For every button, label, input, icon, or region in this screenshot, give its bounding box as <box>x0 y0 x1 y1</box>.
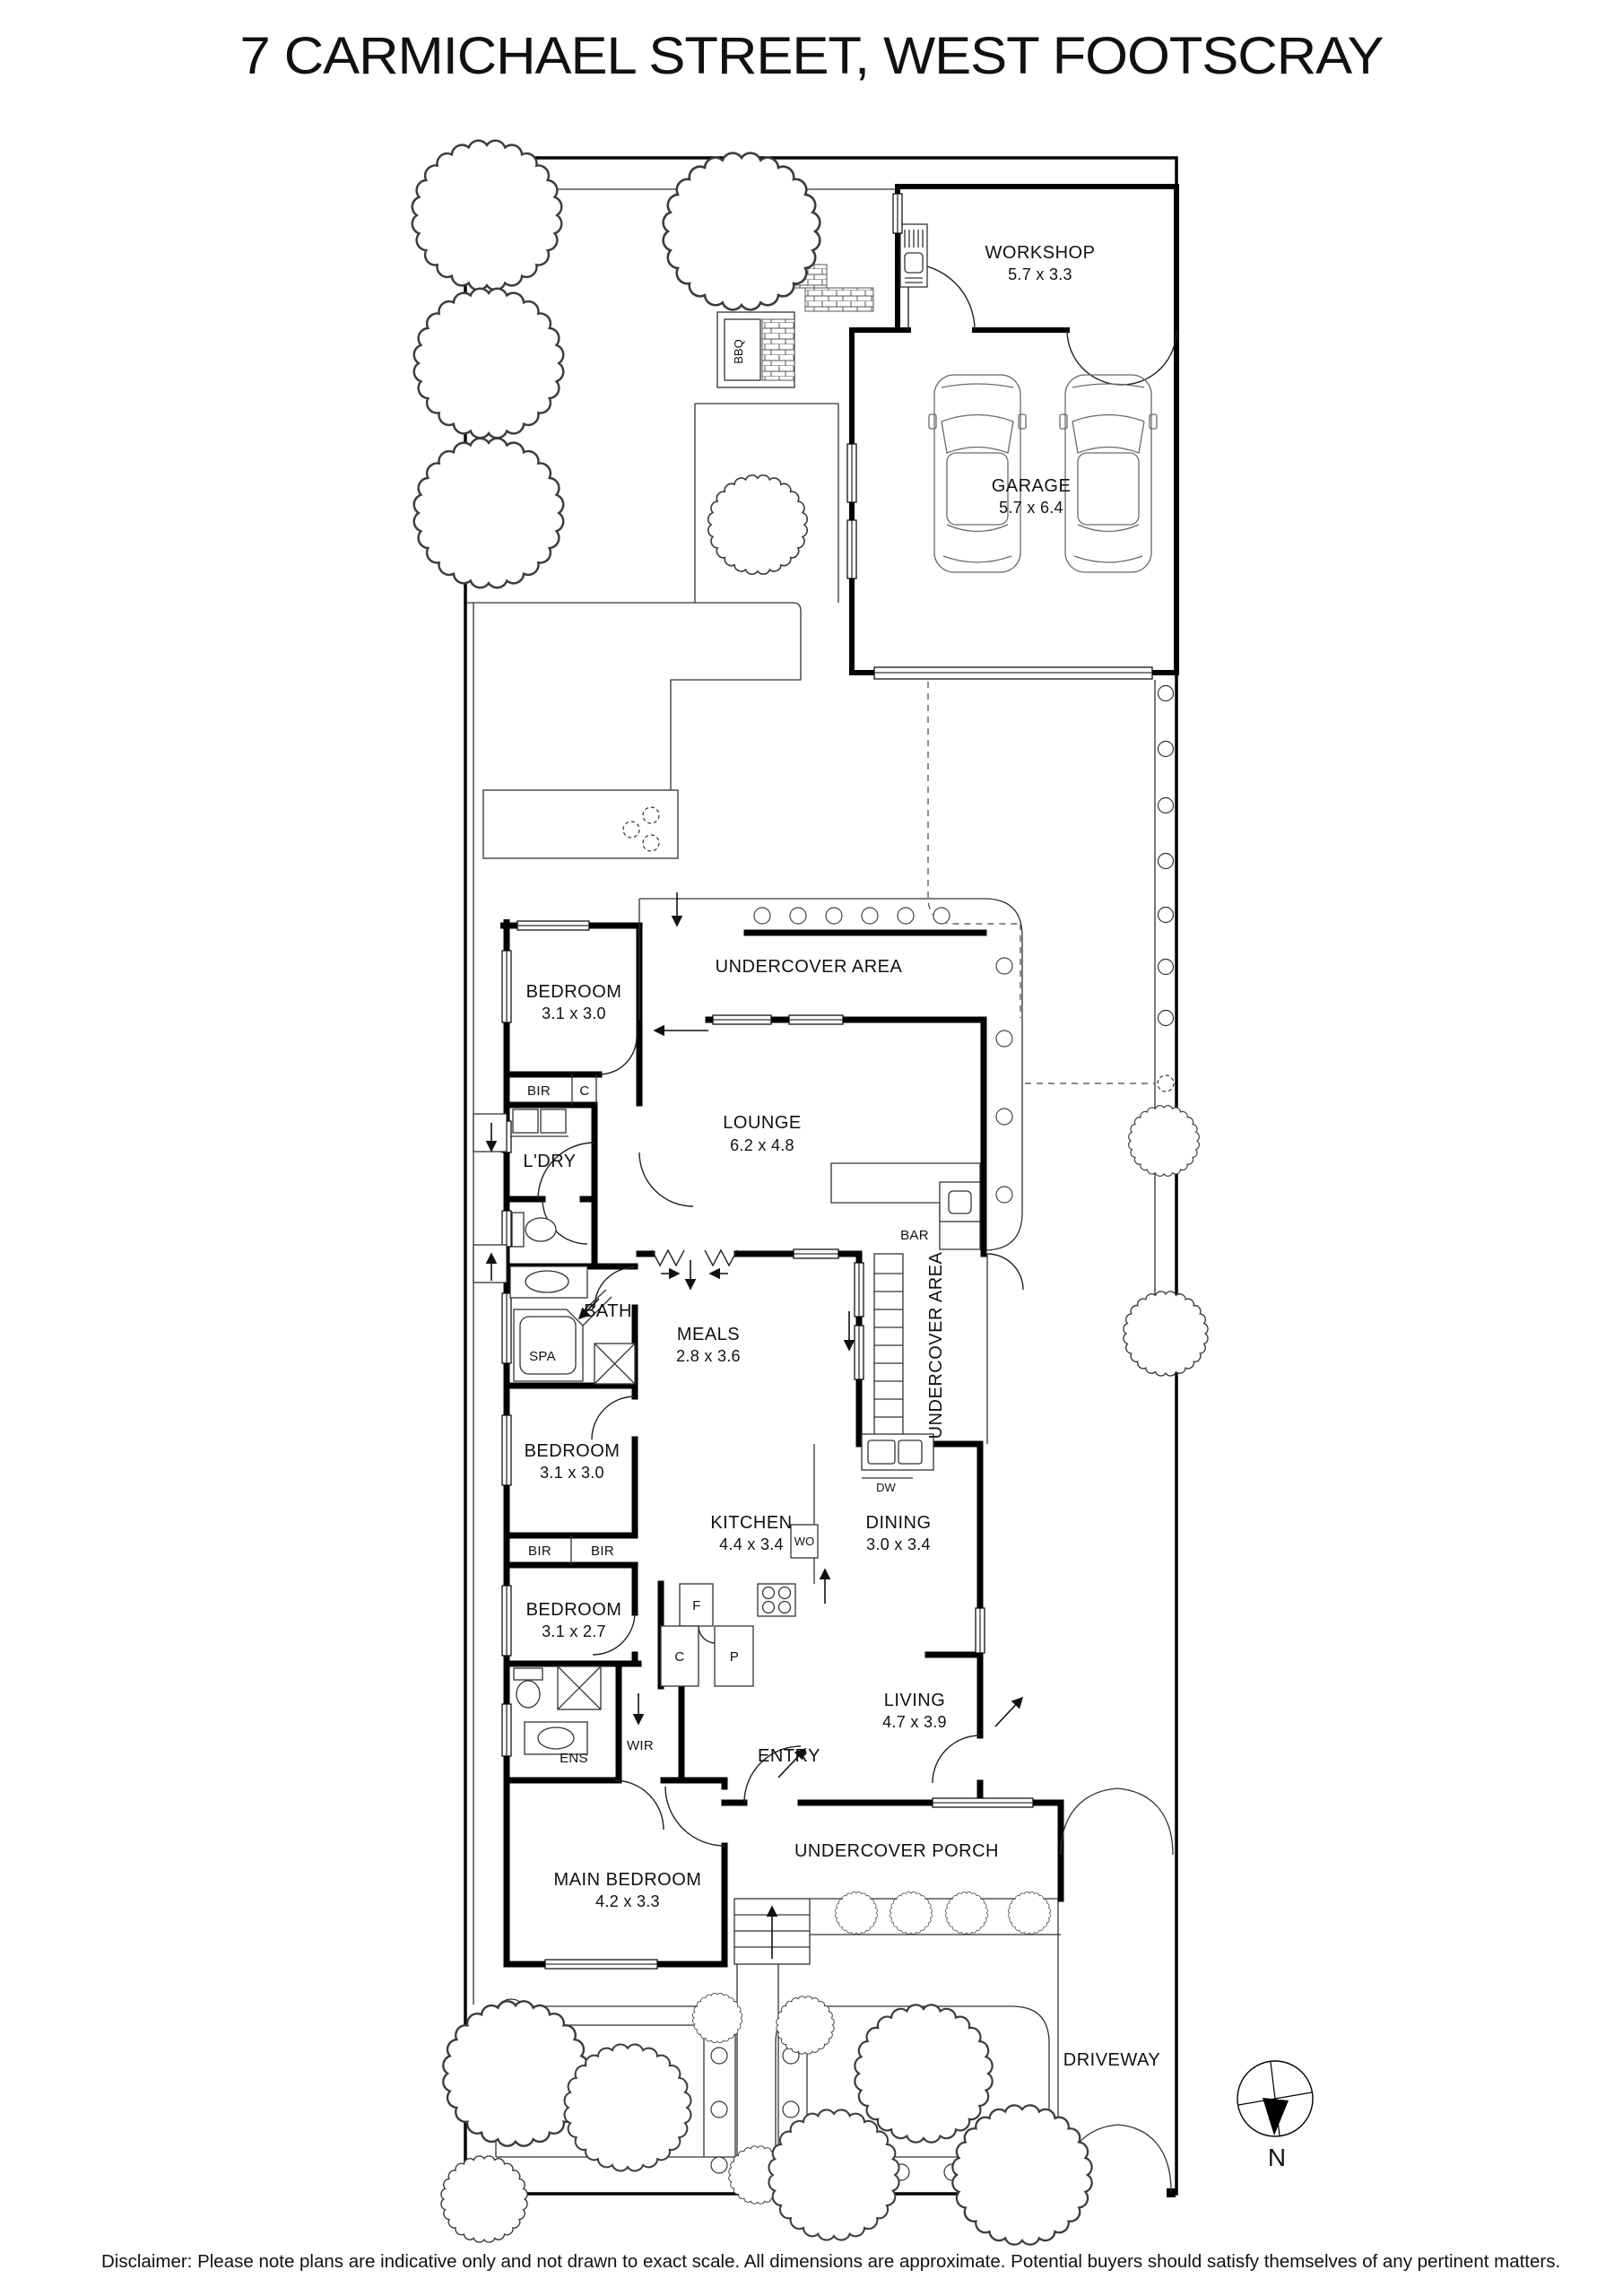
dims-bedroom-mid: 3.1 x 3.0 <box>540 1464 604 1482</box>
label-bir-1: BIR <box>527 1083 551 1099</box>
label-f: F <box>692 1598 700 1613</box>
label-laundry: L'DRY <box>523 1152 576 1171</box>
label-lounge: LOUNGE <box>723 1113 801 1133</box>
dims-garage: 5.7 x 6.4 <box>999 499 1063 517</box>
fixtures <box>510 1109 980 1754</box>
dims-meals: 2.8 x 3.6 <box>676 1347 741 1365</box>
dims-workshop: 5.7 x 3.3 <box>1008 265 1072 283</box>
label-bar: BAR <box>900 1228 929 1243</box>
label-driveway: DRIVEWAY <box>1063 2050 1160 2070</box>
label-dw: DW <box>876 1481 896 1494</box>
label-garage: GARAGE <box>992 476 1072 496</box>
label-bbq: BBQ <box>732 339 745 363</box>
page-title: 7 CARMICHAEL STREET, WEST FOOTSCRAY <box>240 27 1384 85</box>
floor-plan-page: 7 CARMICHAEL STREET, WEST FOOTSCRAY WORK… <box>0 0 1623 2296</box>
car-icon <box>929 375 1026 572</box>
label-living: LIVING <box>884 1691 946 1710</box>
disclaimer-text: Disclaimer: Please note plans are indica… <box>101 2251 1560 2272</box>
label-spa: SPA <box>529 1349 556 1364</box>
compass-north-label: N <box>1268 2144 1286 2171</box>
label-bedroom-mid: BEDROOM <box>525 1441 621 1461</box>
label-bir-2: BIR <box>528 1544 551 1559</box>
label-ens: ENS <box>560 1751 588 1766</box>
label-dining: DINING <box>866 1513 932 1533</box>
side-landings <box>473 1114 507 1283</box>
label-meals: MEALS <box>677 1325 740 1344</box>
label-bir-3: BIR <box>591 1544 614 1559</box>
dims-kitchen: 4.4 x 3.4 <box>719 1535 784 1553</box>
dims-dining: 3.0 x 3.4 <box>866 1535 931 1553</box>
label-bedroom-rear: BEDROOM <box>526 982 622 1002</box>
label-c-2: C <box>674 1649 684 1665</box>
veranda-posts <box>754 908 1012 1203</box>
compass-icon <box>1237 2061 1313 2136</box>
dims-lounge: 6.2 x 4.8 <box>730 1136 794 1154</box>
label-main-bedroom: MAIN BEDROOM <box>554 1870 702 1890</box>
label-bath: BATH <box>584 1301 632 1321</box>
label-wo: WO <box>794 1535 814 1548</box>
label-kitchen: KITCHEN <box>710 1513 792 1533</box>
dims-bedroom-rear: 3.1 x 3.0 <box>542 1004 606 1022</box>
label-c-1: C <box>579 1083 589 1099</box>
property-boundary <box>465 158 1176 2197</box>
label-undercover-side: UNDERCOVER AREA <box>926 1252 946 1439</box>
dims-main-bedroom: 4.2 x 3.3 <box>595 1892 660 1910</box>
floor-plan-canvas: 7 CARMICHAEL STREET, WEST FOOTSCRAY WORK… <box>0 0 1623 2296</box>
label-bedroom-front: BEDROOM <box>526 1600 622 1620</box>
label-p: P <box>730 1649 739 1665</box>
dims-living: 4.7 x 3.9 <box>882 1713 947 1731</box>
label-undercover-porch: UNDERCOVER PORCH <box>794 1841 999 1861</box>
label-entry: ENTRY <box>758 1746 820 1766</box>
label-wir: WIR <box>627 1738 654 1753</box>
label-undercover-top: UNDERCOVER AREA <box>716 957 903 977</box>
workbench-icon <box>900 224 927 287</box>
dims-bedroom-front: 3.1 x 2.7 <box>542 1622 606 1640</box>
label-workshop: WORKSHOP <box>985 243 1096 263</box>
car-icon <box>1060 375 1157 572</box>
